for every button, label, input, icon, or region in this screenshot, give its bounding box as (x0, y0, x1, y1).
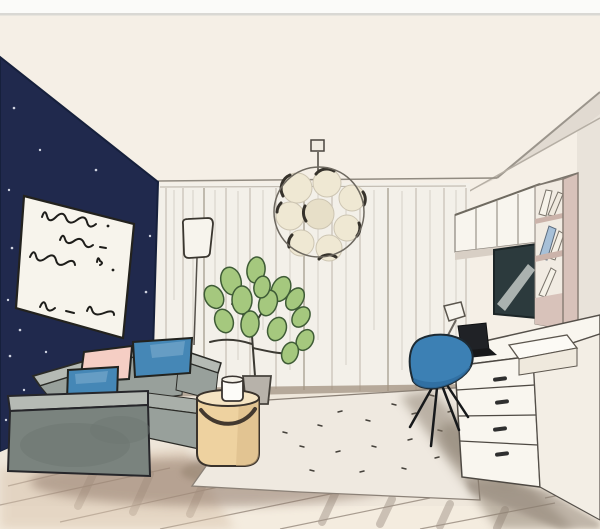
desk-drawers (455, 356, 540, 487)
shelf-side-panel (563, 173, 578, 329)
sofa-arm-wash-2 (90, 416, 150, 444)
room-illustration (0, 0, 600, 529)
mug (222, 376, 243, 401)
pendant-canopy (311, 140, 324, 151)
page-top-strip (0, 0, 600, 16)
floor-lamp-shade (183, 218, 213, 258)
bookshelf (535, 173, 578, 329)
